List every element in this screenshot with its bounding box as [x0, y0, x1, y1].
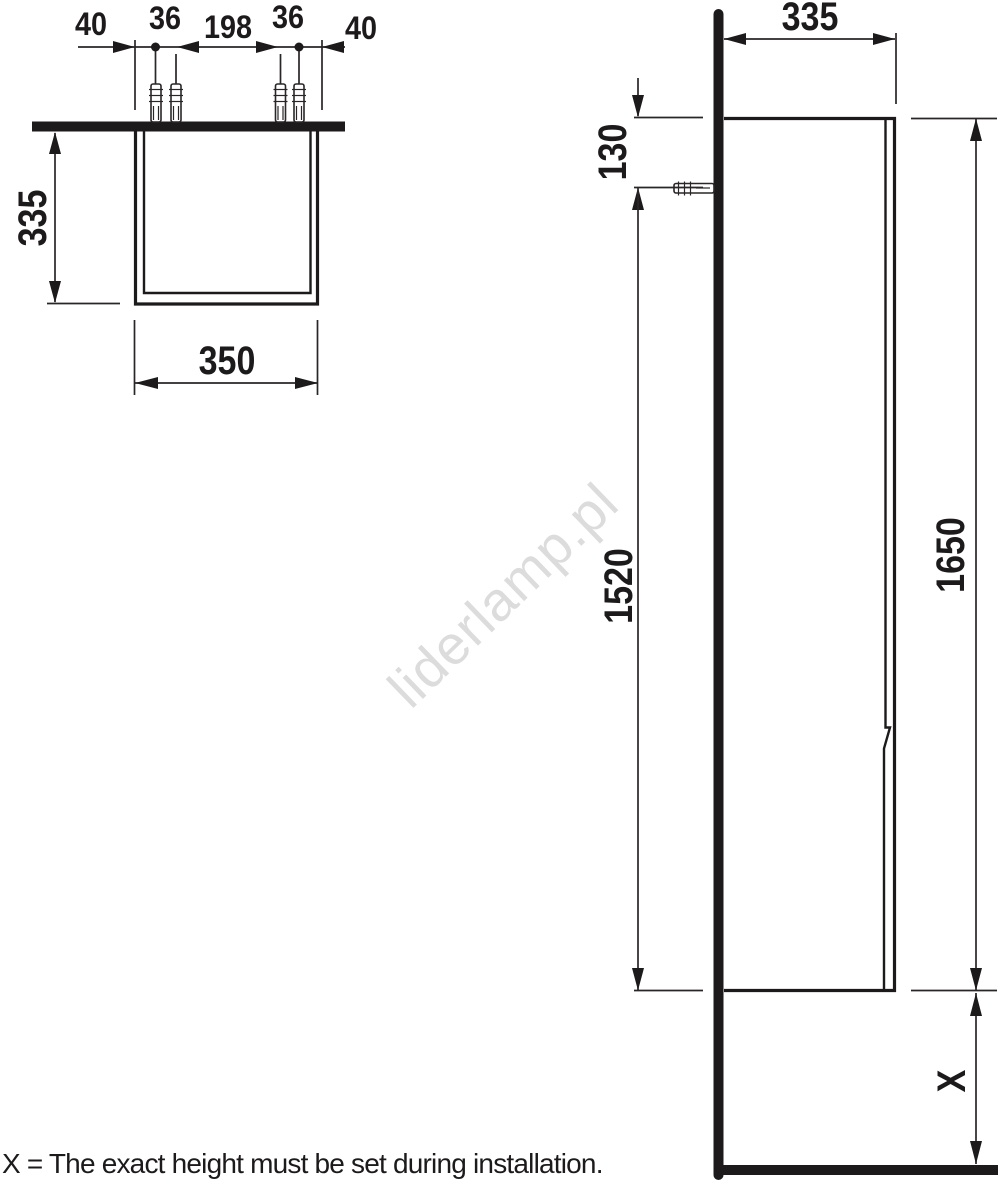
top-view-depth-dimension	[47, 132, 120, 304]
dim-label-top-view-width: 350	[199, 341, 256, 381]
dim-label-anchor-offset: 130	[593, 124, 633, 181]
wall-plug-icon	[274, 84, 288, 122]
arrow-up-icon	[49, 132, 61, 154]
top-view	[32, 40, 345, 395]
arrow-left-icon	[322, 41, 344, 53]
wall-plug-icon	[169, 84, 183, 122]
arrow-up-icon	[970, 119, 982, 142]
dim-label-plug-span: 198	[204, 11, 252, 43]
cabinet-door-edge	[884, 120, 890, 990]
side-view-anchor-to-bottom-dimension	[632, 188, 703, 991]
top-view-top-dimension	[78, 40, 345, 110]
dim-label-anchor-to-bottom: 1520	[599, 548, 639, 624]
side-view	[632, 14, 998, 1175]
arrow-left-icon	[724, 33, 746, 45]
dim-label-floor-clearance: X	[932, 1070, 972, 1093]
arrow-right-icon	[873, 33, 895, 45]
dim-label-plug-pair-left: 36	[149, 2, 181, 34]
dim-label-plug-pair-right: 36	[272, 1, 304, 33]
dim-label-height: 1650	[931, 517, 971, 593]
arrow-up-icon	[970, 993, 982, 1016]
cabinet-side-outline	[724, 117, 896, 992]
dim-label-top-view-depth: 335	[13, 190, 53, 247]
wall-plug-icon	[292, 84, 306, 122]
technical-drawing-page: liderlamp.pl	[0, 0, 1000, 1182]
dimension-dot	[151, 43, 160, 52]
arrow-right-icon	[256, 41, 278, 53]
side-view-depth-dimension	[724, 33, 896, 104]
wall-plug-icon	[149, 84, 163, 122]
arrow-down-icon	[632, 968, 644, 991]
dimension-dot	[295, 43, 304, 52]
dim-label-wall-offset-right: 40	[345, 12, 377, 44]
arrow-down-icon	[970, 1141, 982, 1164]
installation-note: X = The exact height must be set during …	[2, 1148, 603, 1180]
drawing-linework	[0, 0, 1000, 1182]
dim-label-wall-offset-left: 40	[75, 8, 107, 40]
arrow-right-icon	[113, 41, 135, 53]
arrow-left-icon	[177, 41, 199, 53]
wall-anchor-icon	[674, 182, 714, 196]
arrow-down-icon	[970, 968, 982, 991]
arrow-down-icon	[49, 281, 61, 303]
arrow-down-icon	[632, 95, 644, 118]
cabinet-top-outline	[136, 131, 318, 304]
arrow-left-icon	[135, 377, 158, 389]
arrow-right-icon	[295, 377, 318, 389]
dim-label-side-view-depth: 335	[782, 0, 839, 37]
